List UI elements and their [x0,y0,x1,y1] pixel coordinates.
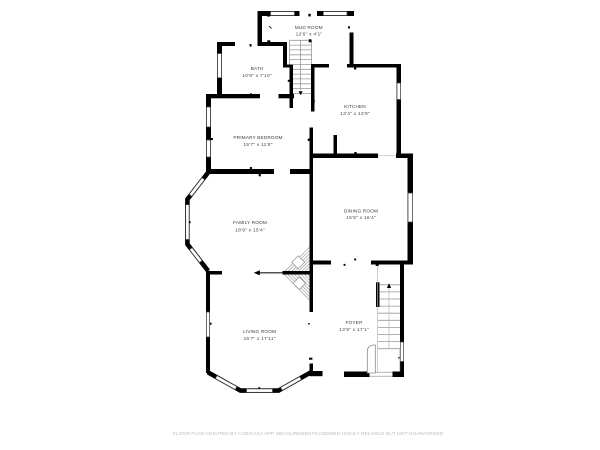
svg-text:18'9" x 15'4": 18'9" x 15'4" [235,227,265,233]
svg-text:15'7" x 11'8": 15'7" x 11'8" [243,142,272,148]
svg-text:15'5" x 16'4": 15'5" x 16'4" [346,215,376,221]
svg-text:PRIMARY BEDROOM: PRIMARY BEDROOM [233,135,282,141]
svg-text:BATH: BATH [251,66,264,72]
svg-text:DINING ROOM: DINING ROOM [344,209,378,215]
svg-text:12'6" x 4'1": 12'6" x 4'1" [296,32,323,38]
svg-text:LIVING ROOM: LIVING ROOM [243,329,276,335]
svg-text:13'4" x 13'9": 13'4" x 13'9" [340,111,370,117]
svg-text:KITCHEN: KITCHEN [344,104,366,110]
svg-text:13'9" x 17'1": 13'9" x 17'1" [339,327,369,333]
svg-text:MUD ROOM: MUD ROOM [295,25,323,31]
svg-text:15'7" x 17'11": 15'7" x 17'11" [243,336,275,342]
svg-text:10'8" x 7'10": 10'8" x 7'10" [242,73,272,79]
svg-text:FOYER: FOYER [345,320,362,326]
svg-text:FAMILY ROOM: FAMILY ROOM [233,220,267,226]
svg-text:FLOOR PLAN CREATED BY CUBICASA: FLOOR PLAN CREATED BY CUBICASA APP. MEAS… [173,431,444,437]
